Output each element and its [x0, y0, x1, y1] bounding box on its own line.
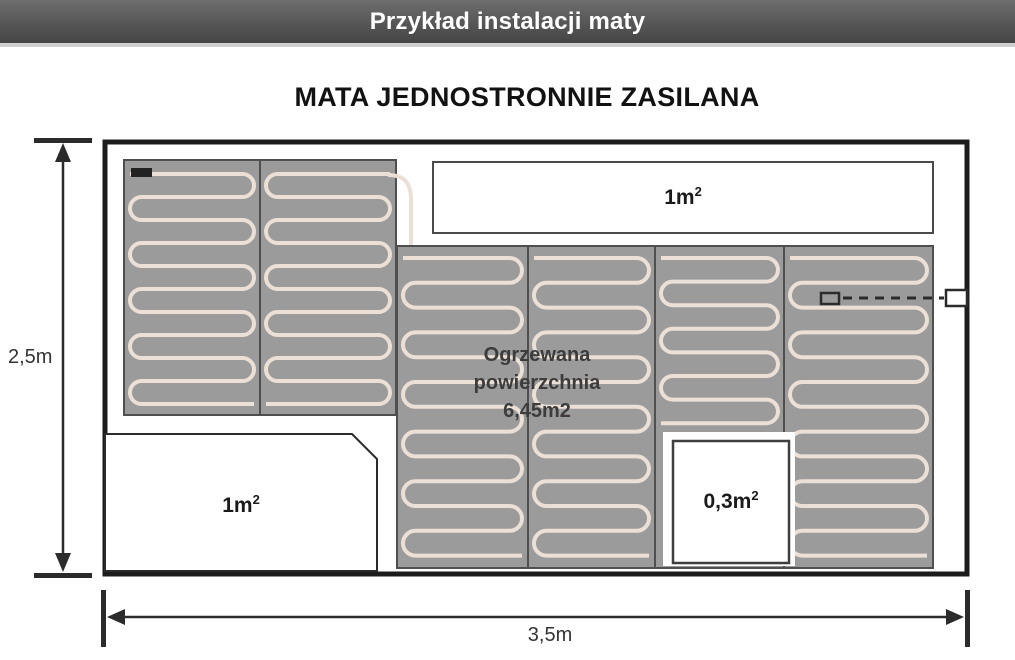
page: Przykład instalacji maty MATA JEDNOSTRON…	[0, 0, 1015, 660]
heated-area-line2: powierzchnia	[417, 369, 657, 397]
cutout-bottom-left-value: 1m	[222, 494, 252, 517]
dim-height-arrow-down-icon	[55, 553, 71, 572]
dim-height-cap-top	[34, 138, 92, 143]
power-connector-icon	[131, 168, 152, 177]
heated-area-line1: Ogrzewana	[417, 341, 657, 369]
dim-width-label: 3,5m	[480, 624, 620, 647]
cutout-bottom-middle-label: 0,3m2	[673, 488, 789, 514]
dim-height-cap-bottom	[34, 573, 92, 578]
dim-width-cap-left	[101, 590, 106, 647]
dim-width-arrow-right-icon	[946, 609, 964, 625]
cutout-bottom-middle-value: 0,3m	[703, 490, 751, 513]
cutout-bottom-left-label: 1m2	[105, 492, 377, 518]
cutout-bottom-left-sup: 2	[253, 492, 260, 507]
cutout-top-value: 1m	[664, 186, 694, 209]
cutout-top-sup: 2	[695, 184, 702, 199]
heated-area-label: Ogrzewana powierzchnia 6,45m2	[417, 341, 657, 425]
cutout-top-label: 1m2	[433, 184, 933, 210]
cutout-bottom-middle-sup: 2	[751, 488, 758, 503]
heated-area-line3: 6,45m2	[417, 397, 657, 425]
dim-height-label: 2,5m	[8, 346, 52, 369]
installation-diagram	[0, 0, 1015, 660]
wall-junction-box-icon	[946, 290, 967, 306]
dim-width-arrow-left-icon	[107, 609, 125, 625]
dim-height-arrow-up-icon	[55, 143, 71, 162]
dim-width-cap-right	[965, 590, 970, 647]
